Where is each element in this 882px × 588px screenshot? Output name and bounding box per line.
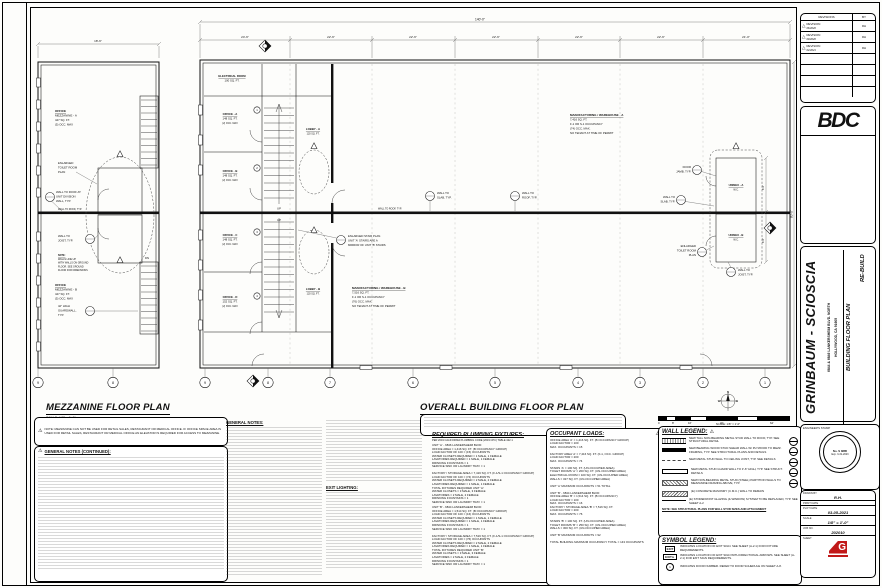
svg-text:(74) OCC. MAX.: (74) OCC. MAX. — [570, 126, 591, 130]
office-warehouse-wall-mid — [331, 203, 333, 223]
engineer-stamp-block: ENGINEER'S STAMP No. S 3885 Exp. 3-31-20… — [800, 424, 880, 490]
svg-text:E: E — [736, 399, 738, 403]
wall-sample-partition — [662, 480, 688, 486]
svg-text:(2) OCC. MAX: (2) OCC. MAX — [222, 243, 238, 246]
project-block: GRINBAUM - SCIOSCIA 6844 & 6846 LANKERSH… — [800, 246, 876, 422]
wall-sample-shear — [662, 448, 686, 452]
svg-text:PLAN: PLAN — [689, 253, 696, 257]
svg-text:TYP.: TYP. — [58, 313, 64, 317]
svg-text:22'-6": 22'-6" — [657, 35, 665, 39]
engineer-stamp-seal: No. S 3885 Exp. 3-31-2023 — [819, 431, 861, 473]
svg-text:F-1 OR S-1 OCCUPANCY: F-1 OR S-1 OCCUPANCY — [352, 295, 385, 299]
warning-icon: ⚠ — [38, 449, 42, 454]
office-warehouse-wall-b — [331, 243, 333, 368]
svg-text:140'-0": 140'-0" — [475, 18, 485, 22]
svg-text:ENLARGED: ENLARGED — [681, 244, 696, 248]
symbol-legend-box: SYMBOL LEGEND: EXIT INDICATES LOCATION O… — [658, 535, 802, 585]
revision-row-empty — [801, 54, 853, 65]
general-notes-header: GENERAL NOTES: — [226, 420, 322, 425]
svg-text:148 SQ. FT.: 148 SQ. FT. — [223, 117, 238, 121]
project-address-line1: 6844 & 6846 LANKERSHEIM BLVD. NORTH — [827, 250, 834, 424]
svg-text:6: 6 — [412, 381, 414, 385]
plumbing-unit-a: UNIT 'A' - 6846 LANKERSHEIM BLVD: OFFICE… — [432, 444, 542, 504]
svg-text:SLAB, TYP.: SLAB, TYP. — [660, 199, 675, 203]
g-company-logo: G — [829, 541, 847, 554]
svg-text:WALLS LINE UP: WALLS LINE UP — [58, 258, 76, 261]
sheet-title: BUILDING FLOOR PLAN — [846, 250, 860, 424]
revision-row-empty — [801, 76, 853, 87]
svg-text:3: 3 — [639, 381, 641, 385]
wall-legend-item: NEW NON-BEARING METAL STUD (STEEL) PARTI… — [662, 479, 798, 488]
revision-triangle-icon: △ — [802, 45, 805, 51]
revision-row-empty — [801, 65, 853, 76]
occupant-loads-box: OCCUPANT LOADS: ⚠ OFFICE AREA 'A' = 1,41… — [546, 428, 664, 586]
g-company-logo-bar — [828, 555, 848, 558]
svg-text:120 SQ. FT.: 120 SQ. FT. — [307, 133, 320, 136]
firm-block: BDC — [800, 106, 876, 244]
svg-text:OFFICE - A: OFFICE - A — [223, 112, 238, 116]
svg-text:UNIT 'A' STAIRS ARE A: UNIT 'A' STAIRS ARE A — [348, 238, 378, 242]
svg-text:GUARDWALL,: GUARDWALL, — [58, 308, 77, 312]
warning-icon: ⚠ — [710, 430, 714, 435]
division-wall — [200, 212, 790, 215]
revisions-header: REVISIONS — [801, 14, 853, 21]
svg-text:JOIST, TYP.: JOIST, TYP. — [738, 272, 753, 276]
svg-text:MEZZANINE - A: MEZZANINE - A — [55, 114, 77, 118]
svg-text:NO TENANT AT TIME OF PERMIT: NO TENANT AT TIME OF PERMIT — [570, 131, 614, 135]
svg-text:WALL TO: WALL TO — [437, 191, 450, 195]
svg-text:5: 5 — [494, 381, 496, 385]
svg-text:22'-6": 22'-6" — [327, 35, 335, 39]
svg-text:WALL TO: WALL TO — [663, 195, 676, 199]
svg-text:WALL TO ROOF, TYP.: WALL TO ROOF, TYP. — [58, 208, 82, 211]
plumbing-fixtures-section: REQUIRED PLUMBING FIXTURES: PER 2019 CAL… — [432, 432, 542, 567]
svg-text:DOOR: DOOR — [683, 165, 691, 169]
plumbing-header: REQUIRED PLUMBING FIXTURES: — [432, 432, 542, 438]
detail-bubble-icon — [789, 447, 798, 456]
svg-text:N: N — [727, 390, 729, 394]
svg-text:JOIST, TYP.: JOIST, TYP. — [58, 238, 73, 242]
division-wall-callouts: WALL TO ROOF, TYP. WALL TO SLAB, TYP. WA… — [378, 191, 537, 211]
symbol-legend-header: SYMBOL LEGEND: — [662, 538, 798, 544]
revision-row-empty — [801, 87, 853, 97]
svg-text:WALL TO ROOF AT: WALL TO ROOF AT — [56, 190, 81, 194]
wall-sample-ceiling-joist — [662, 460, 686, 461]
symbol-legend-item: EXIT► INDICATES LOCATION OF EXIT SIGN WI… — [662, 554, 798, 561]
occupant-header: OCCUPANT LOADS: — [550, 431, 604, 437]
svg-text:OFFICE: OFFICE — [55, 109, 66, 113]
general-notes-col1: GENERAL NOTES: — [226, 420, 322, 575]
svg-text:PLAN: PLAN — [58, 170, 65, 174]
svg-text:UNIT DIVISION: UNIT DIVISION — [56, 194, 76, 198]
svg-text:UNISEX - B: UNISEX - B — [729, 233, 744, 237]
exit-sign-icon: EXIT — [665, 546, 676, 552]
svg-text:(2) OCC. MAX: (2) OCC. MAX — [222, 305, 238, 308]
svg-text:120 SQ. FT.: 120 SQ. FT. — [307, 293, 320, 296]
svg-text:8'-0": 8'-0" — [762, 185, 765, 190]
wall-legend-header: WALL LEGEND: — [662, 429, 708, 435]
svg-text:(2) OCC. MAX: (2) OCC. MAX — [222, 122, 238, 125]
svg-text:JAMB, TYP.: JAMB, TYP. — [676, 169, 691, 173]
svg-text:7,516 SQ. FT.: 7,516 SQ. FT. — [352, 291, 369, 295]
grid-lines — [290, 64, 703, 366]
mezzanine-note-text: NOTE: MEZZANINE CAN NOT BE USED FOR RETA… — [44, 428, 224, 435]
svg-text:9: 9 — [37, 381, 39, 385]
svg-text:FLOOR FOR DIMENSIONS: FLOOR FOR DIMENSIONS — [58, 269, 88, 272]
svg-text:UP: UP — [277, 207, 281, 211]
drawn-by-row: DRAWN BY R.H. — [801, 491, 875, 500]
occupant-text: OFFICE AREA 'A' = 1,416 SQ. FT. (B OCCUP… — [550, 439, 660, 545]
graphic-scale-bar: 0 8' 16' 32' 64' — [658, 416, 790, 425]
svg-text:42" HIGH: 42" HIGH — [58, 304, 70, 308]
door-arcs — [250, 130, 712, 366]
svg-text:(5) OCC. MAX: (5) OCC. MAX — [55, 122, 73, 126]
general-notes-continued-body — [38, 457, 224, 569]
svg-text:F-1 OR S-1 OCCUPANCY: F-1 OR S-1 OCCUPANCY — [570, 122, 603, 126]
plumbing-unit-b: UNIT 'B' - 6844 LANKERSHEIM BLVD: OFFICE… — [432, 506, 542, 566]
overall-grid-bubbles: 9 8 7 6 5 4 3 2 1 — [200, 368, 770, 388]
symbol-legend-item: EXIT INDICATES LOCATION OF EXIT SIGN. SE… — [662, 545, 798, 552]
wall-sample-tall-stud — [662, 438, 686, 444]
binding-margin-line — [26, 2, 27, 586]
revision-triangle-icon: △ — [802, 34, 805, 40]
svg-text:21'-0": 21'-0" — [742, 35, 750, 39]
svg-text:7,416 SQ. FT.: 7,416 SQ. FT. — [570, 118, 587, 122]
project-address-line2: HOLLYWOOD, CA 91605 — [834, 250, 841, 424]
svg-text:OFFICE: OFFICE — [55, 283, 66, 287]
svg-text:MANUFACTURING / WAREHOUSE - B: MANUFACTURING / WAREHOUSE - B — [352, 286, 406, 290]
wall-legend-item: (E) CONCRETE MASONRY (C.M.U.) WALL TO RE… — [662, 490, 798, 497]
detail-bubble-icon — [789, 468, 798, 477]
project-divider — [843, 250, 844, 424]
svg-text:W: W — [718, 399, 721, 403]
svg-text:MIRROR OF UNIT 'B' STAIRS: MIRROR OF UNIT 'B' STAIRS — [348, 243, 386, 247]
sheet-row: SHEET G — [801, 535, 875, 558]
wall-legend-item: (E) STOREFRONT GLAZING (& WINDOW) SYSTEM… — [662, 498, 798, 505]
job-no-row: JOB NO. 202010 — [801, 525, 875, 535]
svg-text:SLAB, TYP.: SLAB, TYP. — [437, 195, 452, 199]
svg-text:152 SQ. FT.: 152 SQ. FT. — [223, 300, 238, 304]
revisions-by-header: BY — [853, 14, 875, 21]
mezzanine-note-box: ⚠ NOTE: MEZZANINE CAN NOT BE USED FOR RE… — [34, 417, 228, 446]
svg-text:OFFICE - B: OFFICE - B — [223, 169, 238, 173]
svg-text:W.C.: W.C. — [733, 189, 739, 192]
north-compass-icon: N W E — [717, 390, 739, 412]
mezzanine-plan: OFFICE MEZZANINE - A 447 SQ. FT. (5) OCC… — [33, 39, 161, 388]
svg-text:148 SQ. FT.: 148 SQ. FT. — [223, 174, 238, 178]
project-name: GRINBAUM - SCIOSCIA — [803, 250, 827, 424]
svg-text:ENLARGED STAIR PLAN.: ENLARGED STAIR PLAN. — [348, 234, 381, 238]
svg-text:WALL TO: WALL TO — [738, 268, 751, 272]
wall-sample-guard — [662, 469, 688, 474]
exit-lighting-header: EXIT LIGHTING: — [326, 485, 422, 490]
general-notes-col2: EXIT LIGHTING: — [326, 420, 422, 570]
svg-text:22'-6": 22'-6" — [492, 35, 500, 39]
svg-text:WALL TO: WALL TO — [58, 234, 71, 238]
wall-legend-item: NEW METAL STUD GUARD WALL TO 3'-6" HIGH,… — [662, 468, 798, 477]
revision-row: △ REVISION 09/2020 — [801, 32, 853, 43]
svg-text:UNISEX - A: UNISEX - A — [729, 183, 744, 187]
svg-text:ENLARGED: ENLARGED — [58, 161, 73, 165]
mezz-grid-bubbles: 9 8 — [33, 368, 118, 388]
svg-text:FLOOR. SEE GROUND: FLOOR. SEE GROUND — [58, 265, 84, 268]
bdc-logo: BDC — [801, 109, 875, 133]
plot-date-row: PLOT DATE 03-05-2021 — [801, 505, 875, 515]
exit-sign-arrow-icon: EXIT► — [663, 554, 677, 560]
svg-text:WITH WALLS ON GROUND: WITH WALLS ON GROUND — [58, 262, 89, 265]
svg-text:OFFICE - C: OFFICE - C — [223, 233, 238, 237]
svg-text:7: 7 — [329, 381, 331, 385]
mezzanine-plan-title: MEZZANINE FLOOR PLAN — [46, 402, 170, 415]
drawing-sheet: OFFICE MEZZANINE - A 447 SQ. FT. (5) OCC… — [0, 0, 882, 588]
svg-text:ROOF, TYP.: ROOF, TYP. — [522, 195, 537, 199]
svg-text:4: 4 — [577, 381, 579, 385]
svg-text:(5) OCC. MAX: (5) OCC. MAX — [55, 296, 73, 300]
svg-text:W.C.: W.C. — [733, 239, 739, 242]
revisions-table: REVISIONS BY △ REVISION 06/2020 RH △ REV… — [800, 13, 876, 103]
svg-text:MEZZANINE - B: MEZZANINE - B — [55, 288, 77, 292]
wall-legend-note: NOTE: SEE STRUCTURAL PLANS FOR WALL STUD… — [662, 507, 798, 511]
revision-row: △ REVISION 06/2020 — [801, 21, 853, 32]
svg-text:447 SQ. FT.: 447 SQ. FT. — [55, 118, 70, 122]
detail-bubble-icon — [789, 458, 798, 467]
revision-row: △ REVISION 02/2021 — [801, 43, 853, 54]
overall-stairs — [264, 104, 294, 318]
office-warehouse-wall-a — [331, 64, 333, 183]
mezz-stairs — [140, 96, 158, 334]
top-dimensions: 140'-0" 24'-6" 22'-6" 22'-6" 22'-6" 22'-… — [198, 18, 792, 59]
detail-bubble-icon — [789, 479, 798, 488]
detail-bubble-icon — [789, 437, 798, 446]
sheet-info-block: DRAWN BY R.H. PRINT DATE PLOT DATE 03-05… — [800, 490, 876, 578]
svg-text:148 SQ. FT.: 148 SQ. FT. — [223, 238, 238, 242]
mezz-division-wall — [38, 212, 159, 215]
general-notes-continued-header: GENERAL NOTES (CONTINUED): — [44, 449, 110, 454]
wall-legend-box: WALL LEGEND: ⚠ NEW TALL NON-BEARING META… — [658, 426, 802, 538]
wall-legend-item: NEW METAL STUD WALL TO CEILING JOIST, TY… — [662, 458, 798, 467]
svg-text:8: 8 — [267, 381, 269, 385]
warning-icon: ⚠ — [38, 429, 42, 434]
overall-plan-title: OVERALL BUILDING FLOOR PLAN — [420, 402, 584, 415]
floor-plan-drawing: OFFICE MEZZANINE - A 447 SQ. FT. (5) OCC… — [31, 8, 797, 394]
svg-text:1: 1 — [764, 381, 766, 385]
overall-room-labels: ELECTRICAL ROOM 100 SQ. FT. OFFICE - A 1… — [218, 74, 624, 308]
mezz-top-dim: 18'-6" — [36, 39, 161, 58]
svg-text:TOILET ROOM: TOILET ROOM — [677, 248, 697, 252]
svg-text:UP: UP — [277, 218, 281, 222]
svg-text:LOBBY - A: LOBBY - A — [306, 127, 320, 131]
svg-text:(76) OCC. MAX.: (76) OCC. MAX. — [352, 299, 373, 303]
overall-window-slots — [199, 105, 693, 370]
svg-text:9: 9 — [204, 381, 206, 385]
symbol-legend-item: 1 INDICATES DOOR NUMBER. REFER TO DOOR S… — [662, 563, 798, 572]
svg-text:24'-6": 24'-6" — [241, 35, 249, 39]
revision-triangle-icon: △ — [802, 23, 805, 29]
wall-sample-storefront — [662, 500, 686, 501]
svg-text:447 SQ. FT.: 447 SQ. FT. — [55, 292, 70, 296]
svg-text:WALL TO: WALL TO — [522, 191, 535, 195]
svg-text:2: 2 — [702, 381, 704, 385]
svg-text:80'-0": 80'-0" — [790, 210, 794, 218]
wall-legend-item: NEW TALL NON-BEARING METAL STUD WALL TO … — [662, 437, 798, 446]
svg-text:OFFICE - D: OFFICE - D — [223, 295, 238, 299]
stamp-label: ENGINEER'S STAMP — [803, 426, 877, 430]
svg-text:100 SQ. FT.: 100 SQ. FT. — [225, 79, 240, 83]
general-notes-continued-box: ⚠ GENERAL NOTES (CONTINUED): — [34, 446, 228, 582]
svg-text:TOILET ROOM: TOILET ROOM — [58, 165, 78, 169]
svg-text:8'-0": 8'-0" — [762, 238, 765, 243]
svg-text:NOTE:: NOTE: — [58, 254, 66, 257]
project-phase: RE-BUILD — [860, 250, 874, 424]
svg-text:MANUFACTURING / WAREHOUSE - A: MANUFACTURING / WAREHOUSE - A — [570, 113, 624, 117]
svg-text:22'-6": 22'-6" — [575, 35, 583, 39]
door-number-tags: 1 2 3 4 — [254, 107, 260, 299]
overall-plan: UP UP 1 2 3 4 ELECTRICAL ROOM 100 SQ. FT… — [198, 18, 796, 388]
svg-text:(2) OCC. MAX: (2) OCC. MAX — [222, 179, 238, 182]
plumbing-sub: PER 2019 CALIFORNIA PLUMBING CODE (2019 … — [432, 439, 542, 442]
wall-legend-item: NEW BEARING WOOD STUD SHEAR WALL W/ PLYW… — [662, 447, 798, 456]
svg-text:WALL, TYP.: WALL, TYP. — [56, 199, 71, 203]
svg-text:ELECTRICAL ROOM: ELECTRICAL ROOM — [218, 74, 246, 78]
svg-text:LOBBY - B: LOBBY - B — [306, 287, 320, 291]
revision-clouds — [299, 143, 739, 274]
wall-sample-cmu — [662, 491, 688, 497]
svg-text:NO TENANT AT TIME OF PERMIT: NO TENANT AT TIME OF PERMIT — [352, 304, 396, 308]
svg-text:WALL TO ROOF, TYP.: WALL TO ROOF, TYP. — [378, 208, 402, 211]
door-number-icon: 1 — [666, 563, 675, 572]
scale-row: SCALE 1/8" = 1'-0" — [801, 515, 875, 525]
svg-text:22'-6": 22'-6" — [409, 35, 417, 39]
svg-text:8: 8 — [112, 381, 114, 385]
svg-text:18'-6": 18'-6" — [94, 39, 102, 43]
svg-text:DN: DN — [145, 256, 149, 260]
